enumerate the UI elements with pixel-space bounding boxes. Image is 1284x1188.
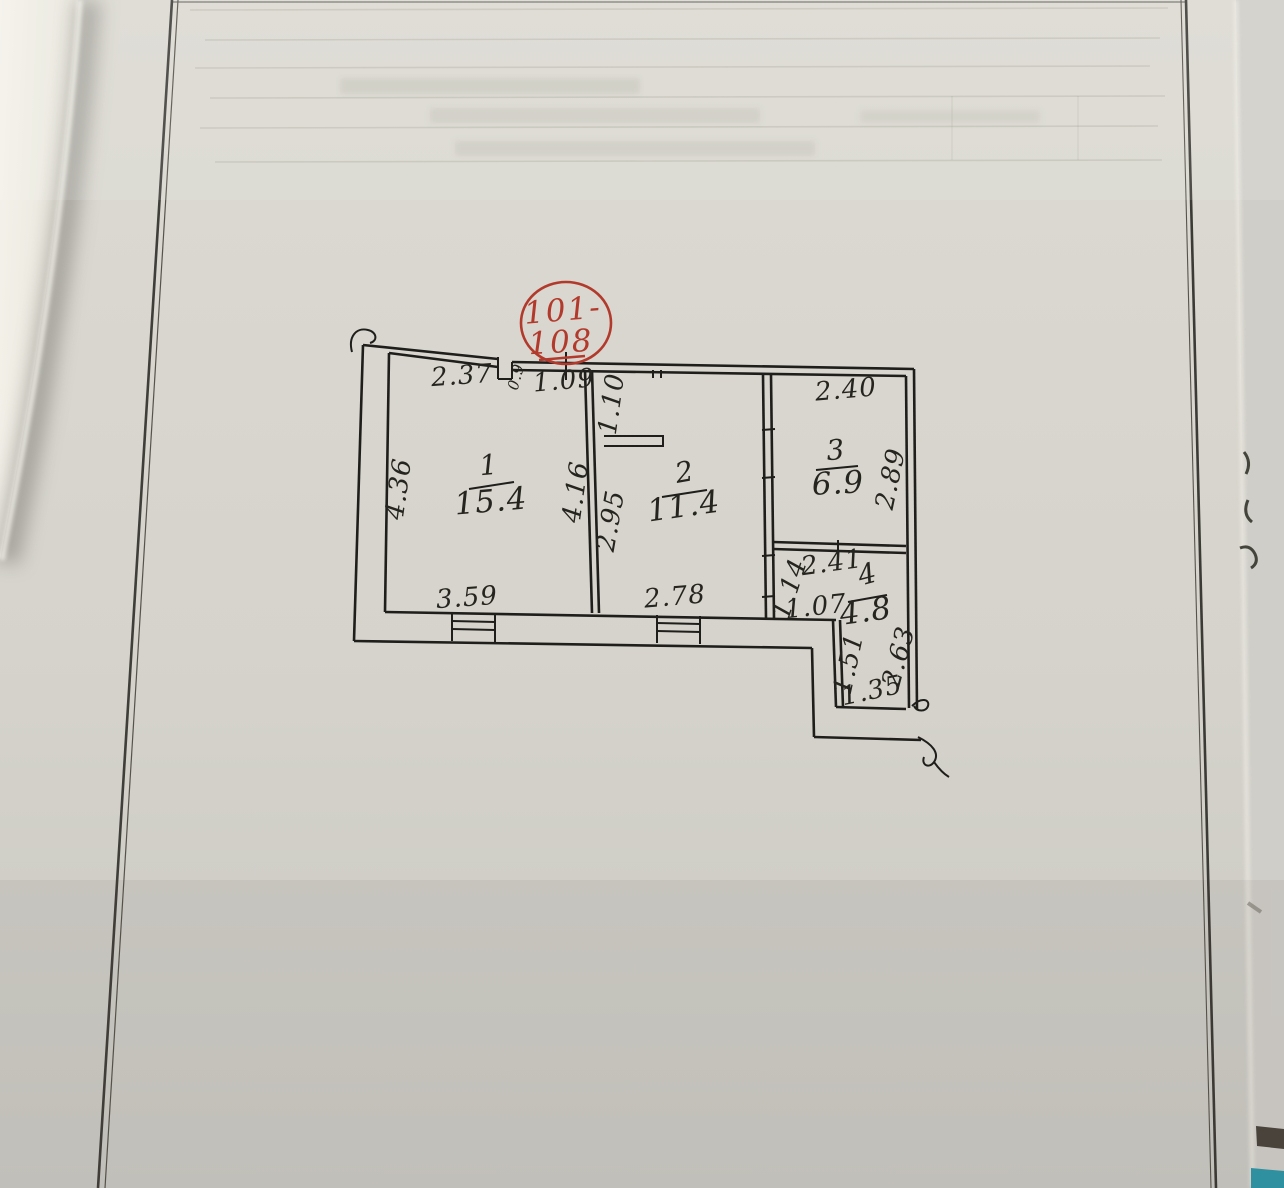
dim-room1-top: 2.37	[429, 359, 494, 393]
dim-room1-bottom: 3.59	[435, 581, 499, 615]
room3-number: 3	[825, 433, 847, 468]
floor-plan-sheet: 101- 108 1 15.4 2 11.4 3 6.9 4 4.8 2.37 …	[0, 0, 1284, 1188]
dim-entry-top: 1.09	[532, 363, 596, 398]
scanned-page-photo: 101- 108 1 15.4 2 11.4 3 6.9 4 4.8 2.37 …	[0, 0, 1284, 1188]
room1-area: 15.4	[453, 480, 529, 522]
room1-number: 1	[478, 448, 500, 483]
room3-area: 6.9	[811, 464, 865, 503]
dim-room3-top: 2.40	[813, 372, 878, 407]
dim-room2-bottom: 2.78	[642, 579, 707, 614]
